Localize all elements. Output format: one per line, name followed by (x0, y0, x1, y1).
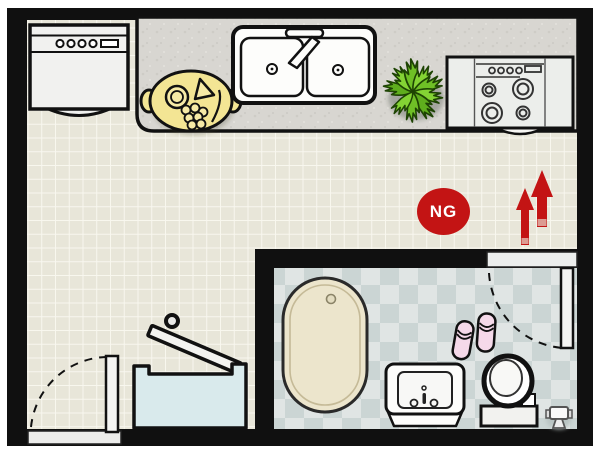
lid-handle (166, 315, 178, 327)
bathroom-door-leaf (561, 268, 573, 348)
gas-stove (447, 57, 573, 134)
double-sink (233, 27, 375, 103)
floor-plan: NG (0, 0, 600, 452)
ng-badge-label: NG (430, 202, 458, 222)
floor-plan-drawing (0, 0, 600, 452)
bathtub (283, 278, 367, 412)
chest-body (134, 364, 246, 428)
bathroom (255, 249, 578, 429)
vanity-sink (386, 364, 464, 426)
toilet-paper-stand (546, 407, 572, 429)
dishwasher (30, 25, 128, 116)
tub-drain (327, 295, 336, 304)
ng-badge: NG (417, 188, 470, 235)
entry-door-leaf (106, 356, 118, 432)
toilet (481, 356, 537, 426)
